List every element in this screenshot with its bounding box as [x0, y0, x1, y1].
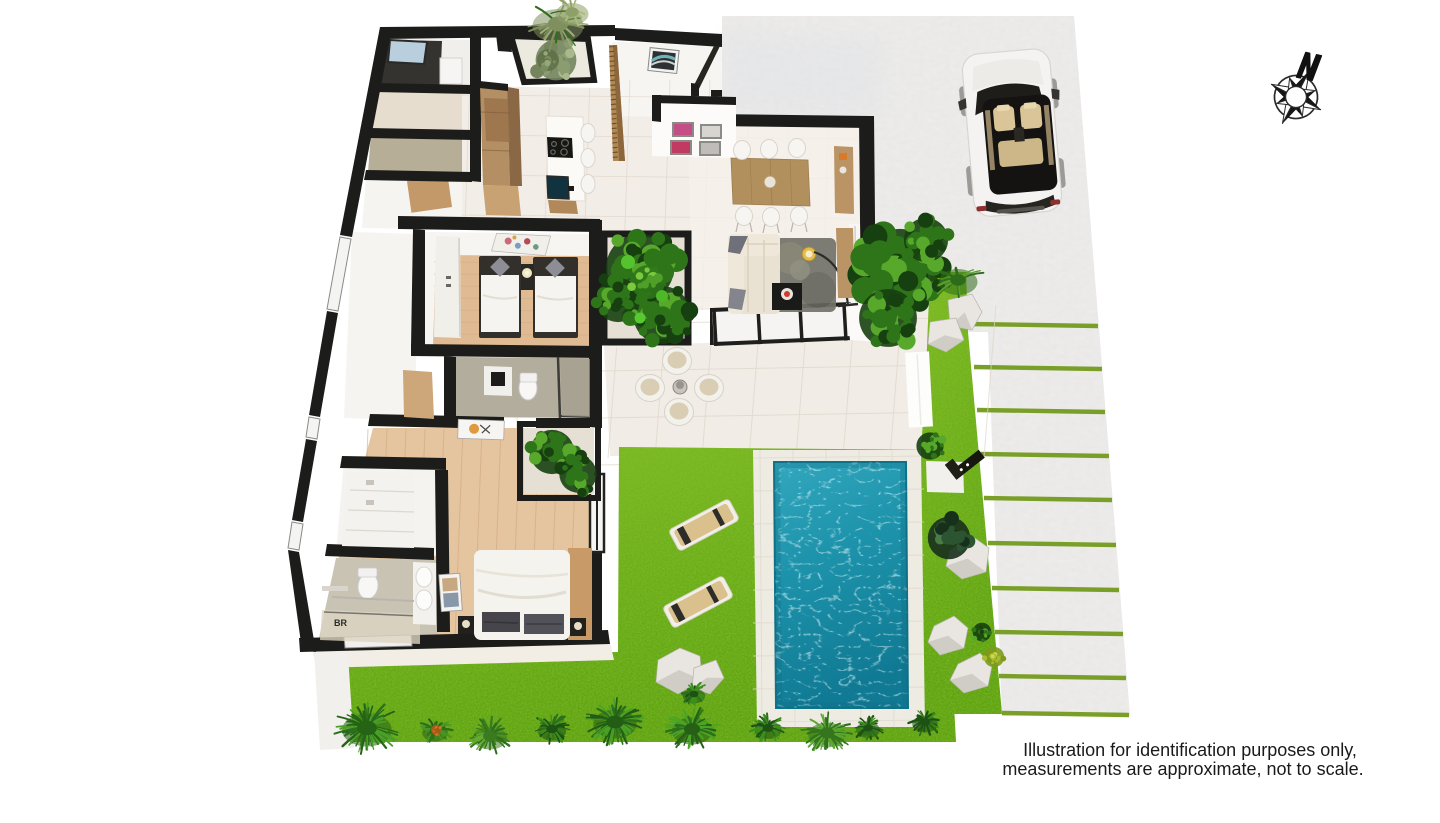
- svg-text:BR: BR: [334, 618, 347, 628]
- svg-text:Illustration for identificatio: Illustration for identification purposes…: [1023, 740, 1357, 760]
- svg-text:measurements are approximate,: measurements are approximate, not to sca…: [1002, 759, 1363, 779]
